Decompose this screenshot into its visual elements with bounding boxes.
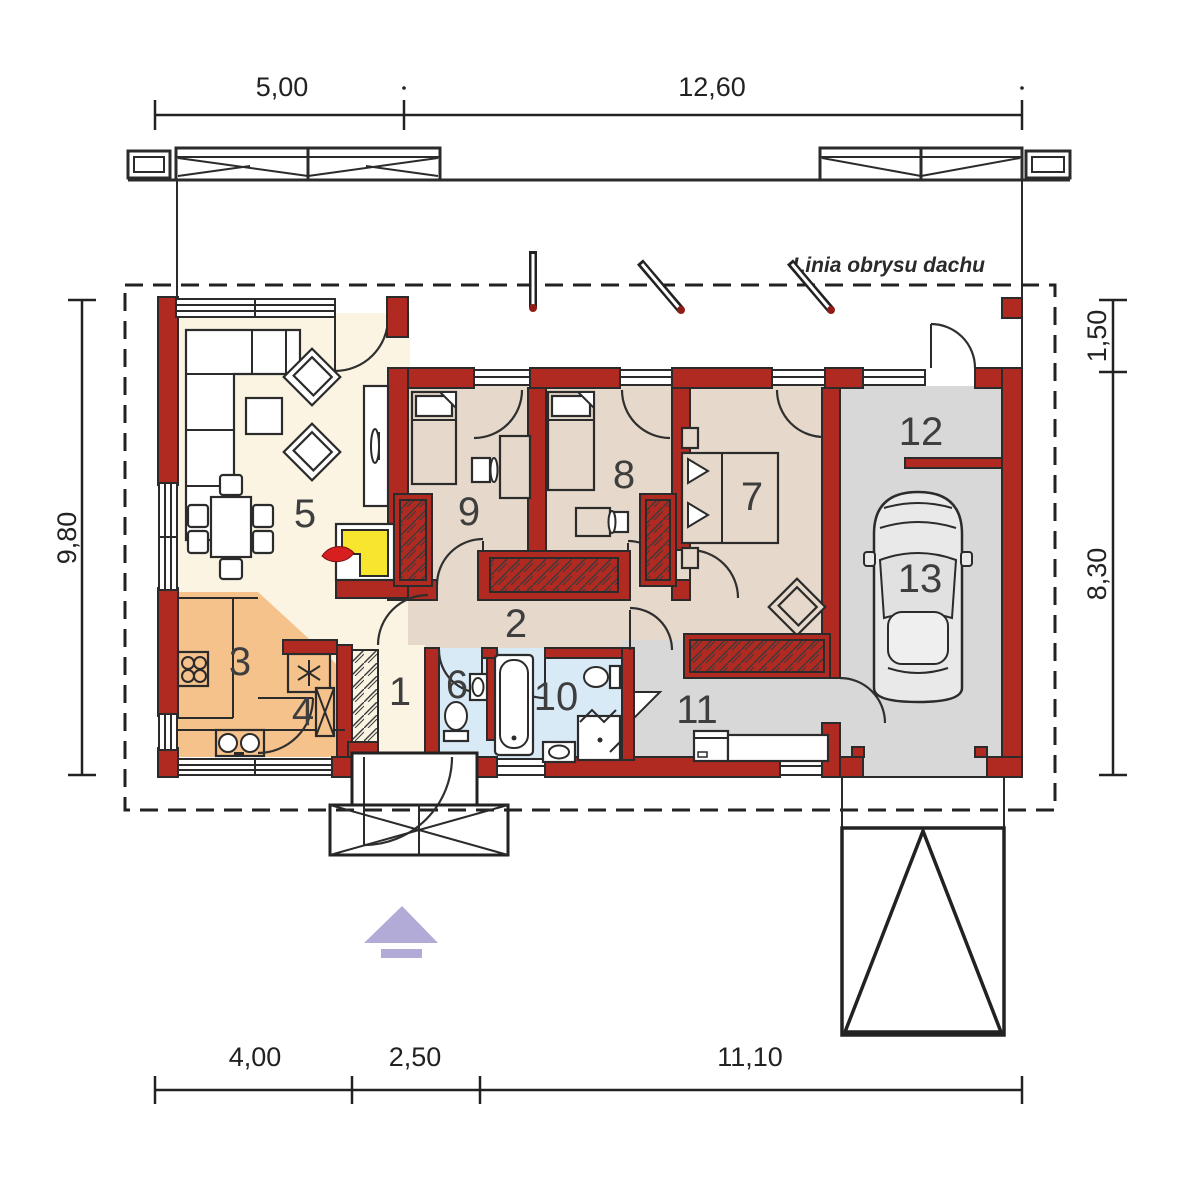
floor-plan-drawing: 5,00 12,60 9,80 1,50 8,30 4,00 2,50 11,1… <box>0 0 1183 1182</box>
window-bath-bottom <box>497 759 545 775</box>
dim-right-1: 1,50 <box>1082 310 1112 363</box>
car-mirror-right <box>961 552 972 566</box>
garage-exterior-door <box>931 324 975 368</box>
room-label-12: 12 <box>899 410 944 454</box>
tv-cabinet <box>364 386 388 506</box>
dim-right-2: 8,30 <box>1082 548 1112 601</box>
toilet-10-icon <box>584 666 620 688</box>
dimension-bottom: 4,00 2,50 11,10 <box>155 1042 1022 1104</box>
wall-garage-partition <box>905 458 1002 468</box>
room-label-6: 6 <box>446 663 468 707</box>
coffee-table <box>246 398 282 434</box>
nightstand-1 <box>682 428 698 448</box>
room-label-11: 11 <box>676 688 718 732</box>
window-kitchen-left <box>159 714 177 750</box>
wardrobe-7 <box>690 640 824 672</box>
roof-outline-label: Linia obrysu dachu <box>792 254 985 277</box>
shower-icon <box>578 710 620 760</box>
sink-icon <box>216 730 264 756</box>
wall-wc-bath <box>487 650 495 740</box>
bed-double <box>682 453 778 543</box>
downspout-2 <box>640 262 685 314</box>
dimension-left: 9,80 <box>52 300 96 775</box>
room-label-1: 1 <box>389 670 411 714</box>
room-label-8: 8 <box>613 453 635 497</box>
fridge-icon <box>288 654 330 692</box>
exterior-pillar <box>1002 298 1022 318</box>
corridor-closet <box>490 558 618 592</box>
window-living-top <box>176 299 335 317</box>
bed-single-9 <box>412 392 456 484</box>
wall-kitchen-hall <box>337 645 352 757</box>
floor-plan-canvas: 5,00 12,60 9,80 1,50 8,30 4,00 2,50 11,1… <box>0 0 1183 1182</box>
washbasin-10-icon <box>543 742 575 762</box>
utility-counter <box>728 735 828 761</box>
bed-single-8 <box>548 392 594 490</box>
room-label-10: 10 <box>534 675 579 719</box>
washbasin-6-icon <box>470 674 487 700</box>
wall-hall-wc <box>425 648 439 757</box>
garage-door-apron <box>842 777 1004 1035</box>
wall-bath-utility <box>622 648 634 760</box>
room-label-13: 13 <box>898 557 943 601</box>
room-label-3: 3 <box>229 640 251 684</box>
dim-left-1: 9,80 <box>52 512 82 565</box>
toilet-6-icon <box>444 702 468 741</box>
washer-icon <box>694 731 728 761</box>
downspout-1 <box>529 251 537 312</box>
bathtub-icon <box>495 655 533 755</box>
entrance-arrow-icon <box>364 906 438 958</box>
desk-8 <box>576 508 628 536</box>
pantry-shelf <box>316 688 334 736</box>
garage-door-symbol <box>845 831 1001 1032</box>
dim-top-1: 5,00 <box>256 72 309 102</box>
room-label-4: 4 <box>292 690 314 734</box>
nightstand-2 <box>682 548 698 568</box>
room-label-2: 2 <box>505 602 527 646</box>
dim-bottom-2: 2,50 <box>389 1042 442 1072</box>
room-label-5: 5 <box>294 492 316 536</box>
car-mirror-left <box>864 552 875 566</box>
tv-icon <box>371 429 379 463</box>
window-garage-top <box>863 370 925 385</box>
dim-bottom-1: 4,00 <box>229 1042 282 1072</box>
dining-table <box>211 497 251 557</box>
dimension-top: 5,00 12,60 <box>155 72 1024 130</box>
wardrobe-8 <box>646 500 670 580</box>
room-label-7: 7 <box>741 475 763 519</box>
dim-top-2: 12,60 <box>678 72 746 102</box>
dimension-right: 1,50 8,30 <box>1082 300 1127 775</box>
room-label-9: 9 <box>458 490 480 534</box>
window-kitchen-bottom <box>178 759 332 775</box>
window-living-left <box>159 483 177 590</box>
roof-eave-left <box>128 148 440 180</box>
roof-eave-right <box>820 148 1070 180</box>
hall-wardrobe <box>352 650 378 742</box>
cooktop-icon <box>178 652 208 686</box>
wardrobe-9 <box>400 500 426 580</box>
dim-bottom-3: 11,10 <box>717 1042 783 1072</box>
